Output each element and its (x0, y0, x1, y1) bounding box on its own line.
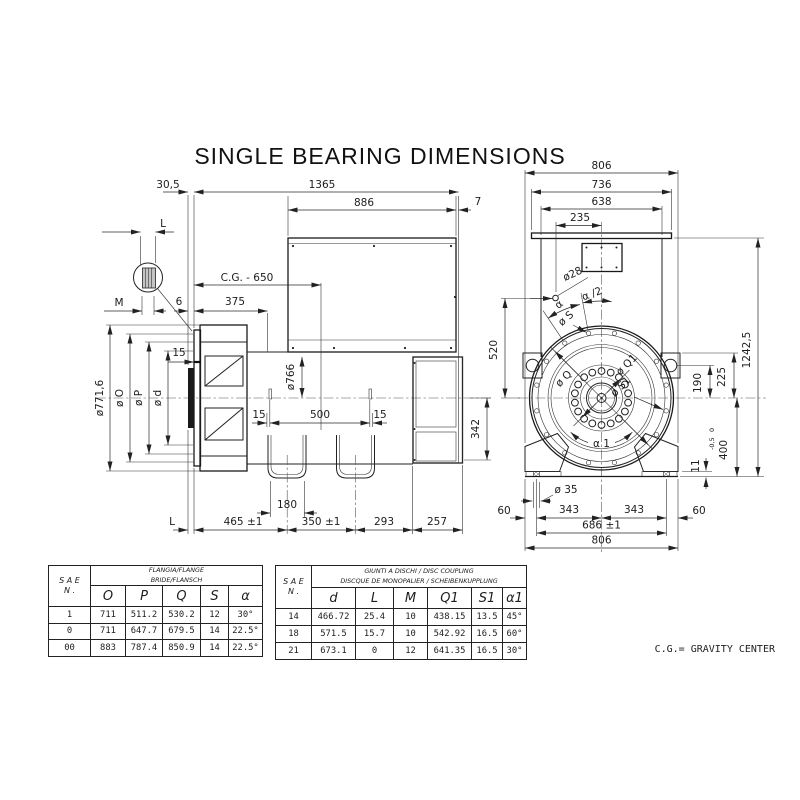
dim-L-top: L (160, 218, 166, 230)
dim-15-right: 15 (373, 409, 386, 421)
coupling-col-M: M (394, 588, 428, 609)
dim-dia-Q: ø Q (553, 368, 574, 389)
dim-293: 293 (374, 516, 394, 528)
flange-col-alpha: α (229, 586, 263, 607)
coupling-row-21: 21 673.1 0 12 641.35 16.5 30° (276, 643, 527, 660)
cell: 12 (201, 607, 229, 624)
dim-dia-Q1: ø Q1 (614, 352, 640, 378)
dim-225: 225 (716, 367, 728, 387)
dim-11: 11 (690, 459, 702, 472)
cell: 25.4 (356, 609, 394, 626)
dim-60-left: 60 (497, 505, 510, 517)
dim-dia-d: ø d (152, 390, 164, 406)
side-extension-lines (106, 195, 491, 534)
coupling-table: S A E N . GIUNTI A DISCHI / DISC COUPLIN… (275, 565, 527, 660)
coupling-row-18: 18 571.5 15.7 10 542.92 16.5 60° (276, 626, 527, 643)
cell: 30° (503, 643, 527, 660)
cell: 641.35 (428, 643, 472, 660)
coupling-table-corner: S A E N . (276, 566, 312, 609)
dim-dia-P: ø P (133, 390, 145, 406)
cell: 1 (49, 607, 91, 624)
dim-886: 886 (354, 197, 374, 209)
svg-text:0: 0 (708, 428, 716, 432)
cell: 787.4 (126, 640, 163, 657)
dim-180: 180 (277, 499, 297, 511)
dim-30-5: 30,5 (156, 179, 179, 191)
svg-text:-0,5: -0,5 (708, 437, 716, 450)
cell: 18 (276, 626, 312, 643)
dim-M: M (114, 297, 123, 309)
cell: 60° (503, 626, 527, 643)
cell: 438.15 (428, 609, 472, 626)
cell: 22.5° (229, 623, 263, 640)
dim-dia-766: ø766 (285, 363, 297, 390)
flange-col-P: P (126, 586, 163, 607)
dim-235: 235 (570, 212, 590, 224)
dim-686: 686 ±1 (582, 520, 621, 532)
dim-dia-771: ø771,6 (94, 379, 106, 416)
dim-15-flange: 15 (172, 347, 185, 359)
gravity-center-note: C.G.= GRAVITY CENTER (560, 644, 775, 655)
dim-190: 190 (692, 373, 704, 393)
flange-table: S A E N . FLANGIA/FLANGE BRIDE/FLANSCH O… (48, 565, 263, 657)
canopy (288, 196, 459, 357)
dim-cg-650: C.G. - 650 (221, 272, 274, 284)
cell: 21 (276, 643, 312, 660)
cell: 12 (394, 643, 428, 660)
dim-500: 500 (310, 409, 330, 421)
dim-257: 257 (427, 516, 447, 528)
cell: 711 (91, 623, 126, 640)
dim-1242: 1242,5 (741, 332, 753, 369)
coupling-col-S1: S1 (472, 588, 503, 609)
svg-text:400: 400 (718, 440, 730, 460)
dim-dia-O: ø O (114, 389, 126, 407)
cell: 15.7 (356, 626, 394, 643)
cell: 14 (201, 623, 229, 640)
coupling-col-alpha1: α1 (503, 588, 527, 609)
cell: 883 (91, 640, 126, 657)
dim-1365: 1365 (309, 179, 336, 191)
flange-row-0: 0 711 647.7 679.5 14 22.5° (49, 623, 263, 640)
dim-806-top: 806 (591, 160, 611, 172)
dim-375: 375 (225, 296, 245, 308)
cell: 673.1 (312, 643, 356, 660)
cell: 16.5 (472, 626, 503, 643)
dim-806-bottom: 806 (591, 535, 611, 547)
flange-row-00: 00 883 787.4 850.9 14 22.5° (49, 640, 263, 657)
flange-table-corner: S A E N . (49, 566, 91, 607)
coupling-col-d: d (312, 588, 356, 609)
cell: 13.5 (472, 609, 503, 626)
flange-col-O: O (91, 586, 126, 607)
cell: 10 (394, 609, 428, 626)
cell: 0 (49, 623, 91, 640)
flange-table-group-header: FLANGIA/FLANGE BRIDE/FLANSCH (91, 566, 263, 586)
cell: 571.5 (312, 626, 356, 643)
dim-15-left: 15 (252, 409, 265, 421)
cell: 45° (503, 609, 527, 626)
canopy-bolts (292, 245, 456, 349)
cell: 22.5° (229, 640, 263, 657)
flange-col-S: S (201, 586, 229, 607)
dim-7: 7 (475, 196, 482, 208)
dim-400-tolerance: 400 0 -0,5 (708, 428, 730, 460)
dim-60-right: 60 (692, 505, 705, 517)
cell: 16.5 (472, 643, 503, 660)
cell: 711 (91, 607, 126, 624)
cell: 10 (394, 626, 428, 643)
cell: 511.2 (126, 607, 163, 624)
cell: 14 (276, 609, 312, 626)
dim-dia-S1: ø S1 (608, 374, 633, 399)
cell: 530.2 (163, 607, 201, 624)
dim-350: 350 ±1 (302, 516, 341, 528)
cell: 00 (49, 640, 91, 657)
dim-dia-35: ø 35 (554, 484, 577, 496)
dim-736: 736 (591, 179, 611, 191)
coupling-row-14: 14 466.72 25.4 10 438.15 13.5 45° (276, 609, 527, 626)
dim-343-left: 343 (559, 504, 579, 516)
cell: 30° (229, 607, 263, 624)
dim-L-bottom: L (169, 516, 175, 528)
coupling-col-L: L (356, 588, 394, 609)
coupling-table-group-header: GIUNTI A DISCHI / DISC COUPLING DISCQUE … (312, 566, 527, 588)
flange-col-Q: Q (163, 586, 201, 607)
dim-6: 6 (176, 296, 183, 308)
dim-dia-28: ø28 (561, 265, 584, 284)
drawing-sheet: SINGLE BEARING DIMENSIONS (0, 0, 800, 800)
coupling-col-Q1: Q1 (428, 588, 472, 609)
cell: 0 (356, 643, 394, 660)
flange-and-disc (188, 330, 201, 466)
flange-row-1: 1 711 511.2 530.2 12 30° (49, 607, 263, 624)
front-view (518, 222, 766, 552)
cell: 466.72 (312, 609, 356, 626)
dim-alpha-1: α 1 (593, 438, 610, 450)
cell: 679.5 (163, 623, 201, 640)
dim-520: 520 (488, 340, 500, 360)
rear-louvre-box (413, 357, 463, 463)
cell: 14 (201, 640, 229, 657)
dim-343-right: 343 (624, 504, 644, 516)
dim-465: 465 ±1 (224, 516, 263, 528)
dim-alpha-half: α /2 (580, 285, 603, 303)
cell: 850.9 (163, 640, 201, 657)
cell: 542.92 (428, 626, 472, 643)
front-view-dimensions: 806 736 638 235 ø28 α /2 α ø S ø Q ø Q1 … (497, 160, 764, 551)
dim-638: 638 (591, 196, 611, 208)
cell: 647.7 (126, 623, 163, 640)
dim-342: 342 (470, 419, 482, 439)
frame-body (247, 352, 413, 464)
engineering-drawing: 30,5 1365 886 7 L C.G. - 650 M 6 375 15 … (0, 0, 800, 800)
